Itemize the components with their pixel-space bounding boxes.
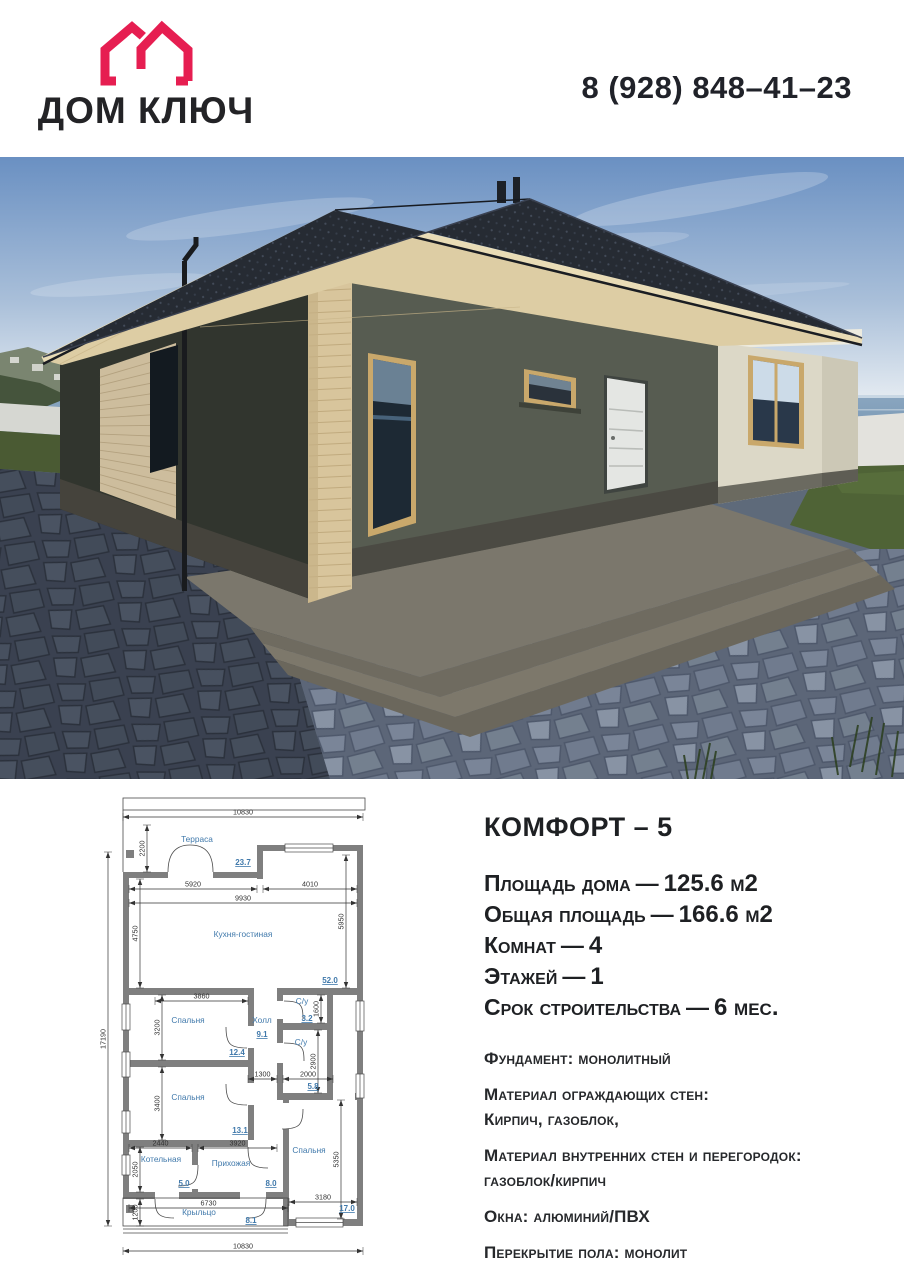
feature-item: Перекрытие пола: монолит	[484, 1240, 884, 1265]
svg-text:Котельная: Котельная	[141, 1154, 181, 1164]
svg-text:5.0: 5.0	[178, 1179, 190, 1188]
svg-text:3.2: 3.2	[301, 1014, 313, 1023]
svg-text:4750: 4750	[131, 926, 140, 942]
phone-number: 8 (928) 848–41–23	[581, 70, 852, 106]
house-render-photo	[0, 157, 904, 779]
svg-text:Холл: Холл	[252, 1015, 272, 1025]
svg-text:10830: 10830	[233, 808, 253, 817]
feature-item: Материал ограждающих стен:Кирпич, газобл…	[484, 1082, 884, 1132]
brand-logo: ДОМ КЛЮЧ	[36, 20, 256, 132]
floor-plan: 1083059204010993038601300200024403920318…	[100, 795, 440, 1265]
svg-text:Спальня: Спальня	[171, 1015, 204, 1025]
svg-text:17190: 17190	[100, 1029, 108, 1049]
svg-text:3400: 3400	[153, 1096, 162, 1112]
features-list: Фундамент: монолитный Материал ограждающ…	[484, 1046, 884, 1281]
svg-text:2000: 2000	[300, 1070, 316, 1079]
svg-text:52.0: 52.0	[322, 976, 338, 985]
fence-left	[0, 403, 60, 435]
svg-text:Прихожая: Прихожая	[212, 1158, 250, 1168]
svg-text:8.0: 8.0	[265, 1179, 277, 1188]
brand-name: ДОМ КЛЮЧ	[36, 90, 256, 132]
details-panel: КОМФОРТ – 5 Площадь дома—125.6 м2 Общая …	[484, 812, 884, 1281]
svg-text:17.0: 17.0	[339, 1204, 355, 1213]
entry-door	[604, 375, 648, 494]
svg-text:Спальня: Спальня	[292, 1145, 325, 1155]
svg-text:Спальня: Спальня	[171, 1092, 204, 1102]
svg-text:С/у: С/у	[296, 996, 309, 1006]
spec-row: Этажей—1	[484, 961, 884, 992]
svg-text:9930: 9930	[235, 894, 251, 903]
svg-text:1200: 1200	[131, 1205, 140, 1221]
header: ДОМ КЛЮЧ 8 (928) 848–41–23	[0, 0, 904, 157]
svg-text:3180: 3180	[315, 1193, 331, 1202]
svg-text:С/у: С/у	[295, 1037, 308, 1047]
svg-text:2200: 2200	[138, 841, 147, 857]
feature-item: Перекрытие межэтажное: деревянное	[484, 1276, 884, 1281]
svg-text:2900: 2900	[309, 1054, 318, 1070]
svg-text:5920: 5920	[185, 880, 201, 889]
model-title: КОМФОРТ – 5	[484, 812, 884, 843]
wall-cream-side	[822, 356, 858, 487]
svg-text:3860: 3860	[194, 992, 210, 1001]
spec-row: Площадь дома—125.6 м2	[484, 868, 884, 899]
svg-text:5350: 5350	[332, 1152, 341, 1168]
wing-window	[748, 355, 804, 449]
spec-row: Комнат—4	[484, 930, 884, 961]
spec-row: Срок строительства—6 мес.	[484, 992, 884, 1023]
flyer-page: ДОМ КЛЮЧ 8 (928) 848–41–23	[0, 0, 904, 1281]
feature-item: Фундамент: монолитный	[484, 1046, 884, 1071]
svg-text:3920: 3920	[230, 1139, 246, 1148]
svg-text:1600: 1600	[312, 1001, 321, 1017]
specs-list: Площадь дома—125.6 м2 Общая площадь—166.…	[484, 868, 884, 1023]
spec-row: Общая площадь—166.6 м2	[484, 899, 884, 930]
svg-text:Терраса: Терраса	[181, 834, 213, 844]
svg-text:5950: 5950	[337, 914, 346, 930]
svg-text:3200: 3200	[153, 1020, 162, 1036]
feature-item: Материал внутренних стен и перегородок:г…	[484, 1143, 884, 1193]
svg-text:13.1: 13.1	[232, 1126, 248, 1135]
house-render-scene	[0, 157, 904, 779]
svg-text:Кухня-гостиная: Кухня-гостиная	[214, 929, 273, 939]
svg-text:23.7: 23.7	[235, 858, 251, 867]
svg-text:4010: 4010	[302, 880, 318, 889]
svg-text:9.1: 9.1	[256, 1030, 268, 1039]
window-left-dark	[150, 345, 178, 473]
svg-text:10830: 10830	[233, 1242, 253, 1251]
tall-window	[368, 353, 416, 537]
svg-text:8.1: 8.1	[245, 1216, 257, 1225]
double-house-icon	[96, 20, 196, 86]
svg-text:5.8: 5.8	[307, 1082, 319, 1091]
svg-text:Крыльцо: Крыльцо	[182, 1207, 216, 1217]
svg-text:1300: 1300	[255, 1070, 271, 1079]
svg-text:2050: 2050	[131, 1162, 140, 1178]
svg-text:12.4: 12.4	[229, 1048, 245, 1057]
feature-item: Окна: алюминий/ПВХ	[484, 1204, 884, 1229]
floor-plan-drawing: 1083059204010993038601300200024403920318…	[100, 795, 440, 1265]
